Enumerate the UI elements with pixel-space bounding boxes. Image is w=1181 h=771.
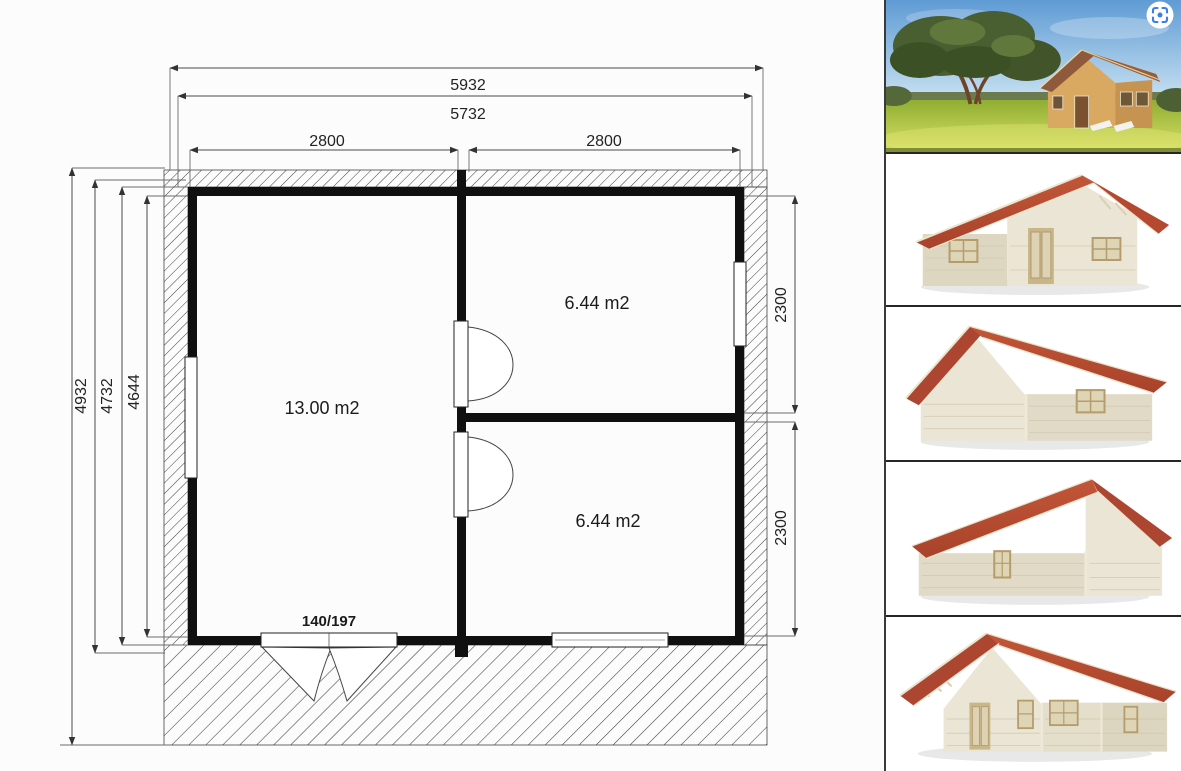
- image-search-lens-icon: [1146, 1, 1174, 29]
- dim-label-4644: 4644: [126, 374, 143, 410]
- room-label-main: 13.00 m2: [284, 398, 359, 418]
- dim-label-2800-right: 2800: [586, 133, 622, 150]
- image-search-lens-button[interactable]: [1146, 1, 1174, 29]
- dim-label-4932: 4932: [73, 378, 90, 414]
- cabin-photo: [886, 0, 1181, 152]
- thumbnail-render-front-angled[interactable]: [886, 615, 1181, 771]
- front-door: [969, 703, 990, 750]
- thumbnail-render-side[interactable]: [886, 305, 1181, 460]
- floor-plan-svg: 5932 5732 2800 2800 4932 4732 4644 2300 …: [0, 0, 884, 771]
- window: [994, 551, 1010, 577]
- thumbnail-photo-cabin-garden[interactable]: [886, 0, 1181, 152]
- thumbnail-render-front[interactable]: [886, 152, 1181, 305]
- door-size-label: 140/197: [302, 613, 356, 630]
- walls: [188, 170, 744, 657]
- cabin-render-side: [886, 307, 1181, 460]
- cabin-render-front-angled: [886, 617, 1181, 771]
- room-label-bottom-right: 6.44 m2: [575, 511, 640, 531]
- floor-plan-drawing: 5932 5732 2800 2800 4932 4732 4644 2300 …: [0, 0, 884, 771]
- dim-label-2300-bottom: 2300: [773, 510, 790, 546]
- window-left: [185, 357, 197, 478]
- dim-label-5732: 5732: [450, 106, 486, 123]
- dim-label-2800-left: 2800: [309, 133, 345, 150]
- dim-label-5932: 5932: [450, 77, 486, 94]
- dim-label-2300-top: 2300: [773, 287, 790, 323]
- door-swing-top: [454, 321, 513, 407]
- thumbnail-sidebar: [884, 0, 1181, 771]
- cabin-render-back: [886, 462, 1181, 615]
- door-swing-bottom: [454, 432, 513, 517]
- dim-label-4732: 4732: [99, 378, 116, 414]
- room-label-top-right: 6.44 m2: [564, 293, 629, 313]
- front-door: [1028, 228, 1054, 284]
- thumbnail-render-back[interactable]: [886, 460, 1181, 615]
- hatch-terrace: [164, 645, 767, 745]
- window: [1077, 390, 1105, 412]
- window-right: [734, 262, 746, 346]
- cabin-render-front: [886, 154, 1181, 305]
